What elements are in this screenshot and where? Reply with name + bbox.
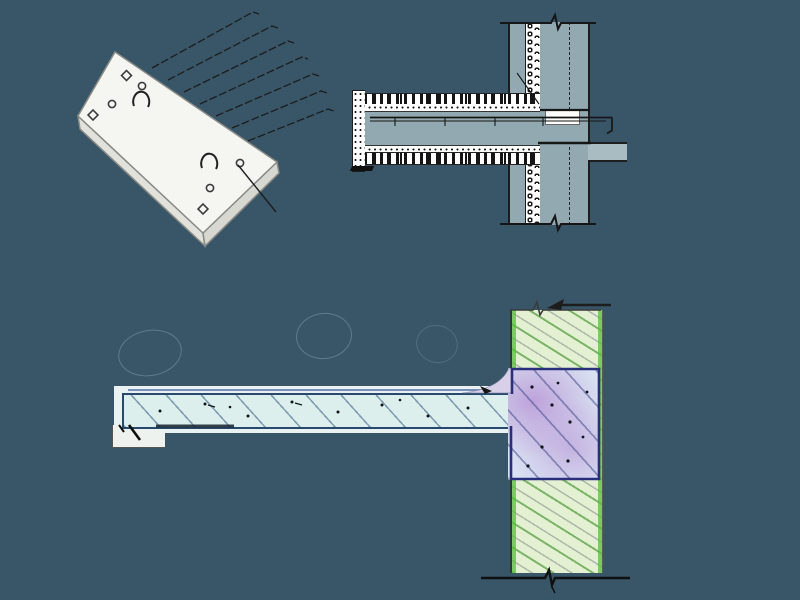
wall-top-leader bbox=[547, 299, 611, 310]
rebar-end-hook bbox=[607, 118, 612, 134]
aggregate-dots-zone bbox=[526, 382, 588, 468]
stirrup-ticks bbox=[395, 118, 543, 126]
balcony-linework bbox=[100, 295, 660, 595]
break-tick bbox=[552, 587, 555, 593]
drip-edge-marks bbox=[119, 425, 234, 440]
isometric-plate-figure bbox=[40, 0, 340, 250]
balcony-connection-figure bbox=[100, 295, 660, 595]
slab-rebar bbox=[370, 118, 612, 134]
wall-bottom-break-line bbox=[500, 216, 596, 230]
wall-top-break-line bbox=[500, 15, 596, 29]
plate-top-face bbox=[78, 52, 277, 233]
screenshot-root: { "colors": { "background": "#385668", "… bbox=[0, 0, 800, 600]
leader-arrowhead bbox=[547, 299, 564, 310]
section-detail-linework bbox=[350, 10, 640, 235]
connection-zone-outline bbox=[511, 369, 599, 479]
wall-section-detail-figure bbox=[350, 10, 640, 235]
wall-bottom-break-line bbox=[481, 570, 630, 585]
aggregate-dots-slab bbox=[159, 399, 470, 418]
leader-diagonal bbox=[517, 73, 539, 104]
